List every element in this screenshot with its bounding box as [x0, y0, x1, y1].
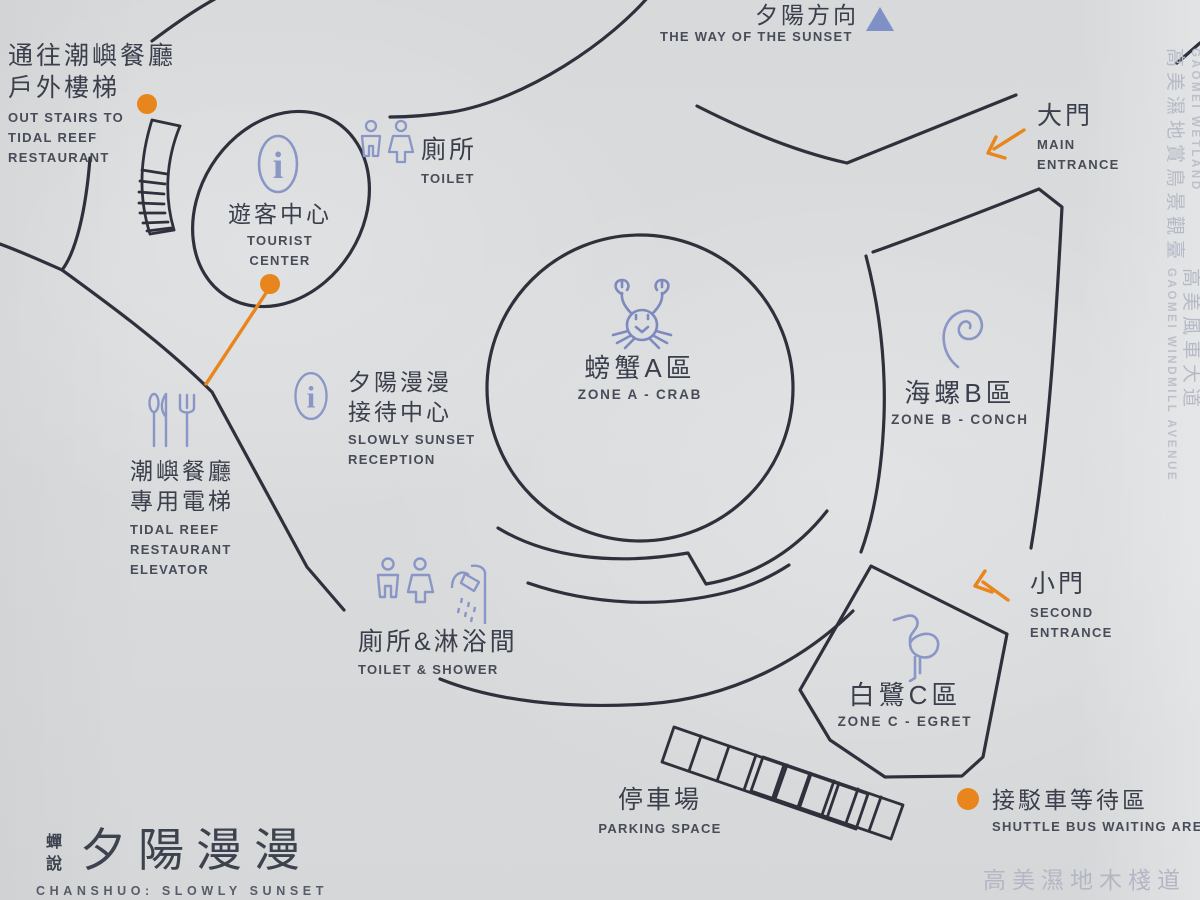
- zone-c-zh: 白鷺C區: [805, 682, 1005, 708]
- sunset-direction-label: 夕陽方向: [755, 4, 859, 27]
- tourist-center-en1: TOURIST: [205, 234, 355, 247]
- stairs-label-en1: OUT STAIRS TO: [8, 111, 176, 124]
- toilet-label-zh: 廁所: [421, 138, 477, 163]
- second-entrance-label: 小門 SECOND ENTRANCE: [1030, 572, 1113, 646]
- stairs-label: 通往潮嶼餐廳 戶外樓梯 OUT STAIRS TO TIDAL REEF RES…: [8, 44, 176, 171]
- main-entrance-arrow-icon: [988, 130, 1024, 158]
- tourist-center-pointer-line: [206, 290, 268, 384]
- stairs-label-zh1: 通往潮嶼餐廳: [8, 44, 176, 69]
- main-entrance-en1: MAIN: [1037, 138, 1120, 151]
- stairs-label-en2: TIDAL REEF: [8, 131, 176, 144]
- elevator-zh2: 專用電梯: [130, 490, 234, 513]
- parking-label: 停車場 PARKING SPACE: [560, 788, 760, 842]
- main-entrance-label: 大門 MAIN ENTRANCE: [1037, 104, 1120, 178]
- edge-label-boardwalk: 高美濕地木棧道: [983, 869, 1186, 892]
- toilet-shower-icon: [374, 552, 488, 630]
- zone-b-zh: 海螺B區: [860, 380, 1060, 406]
- road-left-branch: [0, 244, 62, 270]
- stairs-label-en3: RESTAURANT: [8, 151, 176, 164]
- map-roads: [0, 0, 1200, 900]
- elevator-en1: TIDAL REEF: [130, 523, 234, 536]
- zone-b-label: 海螺B區 ZONE B - CONCH: [860, 380, 1060, 434]
- second-entrance-en1: SECOND: [1030, 606, 1113, 619]
- zone-b-en: ZONE B - CONCH: [860, 413, 1060, 427]
- tourist-center-dot: [260, 274, 280, 294]
- road-top-loop: [390, 0, 654, 117]
- zone-a-zh: 螃蟹A區: [540, 355, 740, 381]
- edge-label-wetland: GAOMEI WETLAND 高美濕地賞鳥景觀臺: [1166, 48, 1200, 264]
- conch-icon: [936, 300, 986, 370]
- tourist-center-en2: CENTER: [205, 254, 355, 267]
- svg-text:i: i: [273, 145, 284, 187]
- reception-en2: RECEPTION: [348, 453, 475, 466]
- second-entrance-en2: ENTRANCE: [1030, 626, 1113, 639]
- reception-zh2: 接待中心: [348, 401, 475, 424]
- zone-c-label: 白鷺C區 ZONE C - EGRET: [805, 682, 1005, 736]
- crab-icon: [598, 278, 686, 350]
- edge-label-windmill-zh: 高美風車大道: [1181, 268, 1200, 482]
- elevator-zh1: 潮嶼餐廳: [130, 460, 234, 483]
- shuttle-label: 接駁車等待區 SHUTTLE BUS WAITING AREA: [992, 789, 1200, 840]
- reception-zh1: 夕陽漫漫: [348, 371, 475, 394]
- elevator-en2: RESTAURANT: [130, 543, 234, 556]
- brand-zh-large: 夕陽漫漫: [80, 828, 312, 874]
- sunset-direction-en: THE WAY OF THE SUNSET: [660, 30, 853, 43]
- main-entrance-zh: 大門: [1037, 104, 1120, 129]
- svg-text:i: i: [307, 379, 316, 414]
- toilet-icon: [358, 118, 416, 174]
- road-main-entrance: [697, 95, 1016, 163]
- egret-icon: [886, 610, 942, 682]
- zone-c-en: ZONE C - EGRET: [805, 715, 1005, 729]
- info-icon: i: [256, 133, 300, 195]
- reception-en1: SLOWLY SUNSET: [348, 433, 475, 446]
- reception-label: 夕陽漫漫 接待中心 SLOWLY SUNSET RECEPTION: [348, 371, 475, 473]
- main-entrance-en2: ENTRANCE: [1037, 158, 1120, 171]
- stairs-label-zh2: 戶外樓梯: [8, 76, 176, 101]
- tourist-center-zh: 遊客中心: [205, 203, 355, 226]
- shuttle-en: SHUTTLE BUS WAITING AREA: [992, 820, 1200, 833]
- second-entrance-arrow-icon: [975, 571, 1008, 600]
- edge-label-wetland-en: GAOMEI WETLAND: [1189, 48, 1200, 264]
- second-entrance-zh: 小門: [1030, 572, 1113, 597]
- sunset-direction-zh: 夕陽方向: [755, 4, 859, 27]
- edge-label-wetland-zh: 高美濕地賞鳥景觀臺: [1166, 48, 1185, 264]
- elevator-label: 潮嶼餐廳 專用電梯 TIDAL REEF RESTAURANT ELEVATOR: [130, 460, 234, 583]
- toilet-label: 廁所 TOILET: [421, 138, 477, 192]
- slowly-sunset-map: i i: [0, 0, 1200, 900]
- toilet-shower-label: 廁所&淋浴間 TOILET & SHOWER: [358, 630, 518, 683]
- toilet-shower-zh: 廁所&淋浴間: [358, 630, 518, 655]
- toilet-shower-en: TOILET & SHOWER: [358, 663, 518, 676]
- parking-zh: 停車場: [560, 788, 760, 813]
- shuttle-dot: [957, 788, 979, 810]
- shuttle-zh: 接駁車等待區: [992, 789, 1200, 812]
- parking-en: PARKING SPACE: [560, 822, 760, 835]
- sunset-direction-triangle-icon: [866, 7, 894, 31]
- road-top-left: [152, 0, 250, 41]
- brand-zh-small: 蟬說: [46, 832, 66, 875]
- zone-a-en: ZONE A - CRAB: [540, 388, 740, 402]
- zone-a-label: 螃蟹A區 ZONE A - CRAB: [540, 355, 740, 409]
- brand-subtitle: CHANSHUO: SLOWLY SUNSET: [36, 885, 328, 898]
- edge-label-windmill-en: GAOMEI WINDMILL AVENUE: [1165, 268, 1177, 482]
- reception-info-icon: i: [293, 368, 329, 424]
- tourist-center-label: 遊客中心 TOURIST CENTER: [205, 203, 355, 274]
- toilet-label-en: TOILET: [421, 172, 477, 185]
- edge-label-windmill: 高美風車大道 GAOMEI WINDMILL AVENUE: [1165, 268, 1200, 482]
- restaurant-utensils-icon: [146, 390, 202, 450]
- elevator-en3: ELEVATOR: [130, 563, 234, 576]
